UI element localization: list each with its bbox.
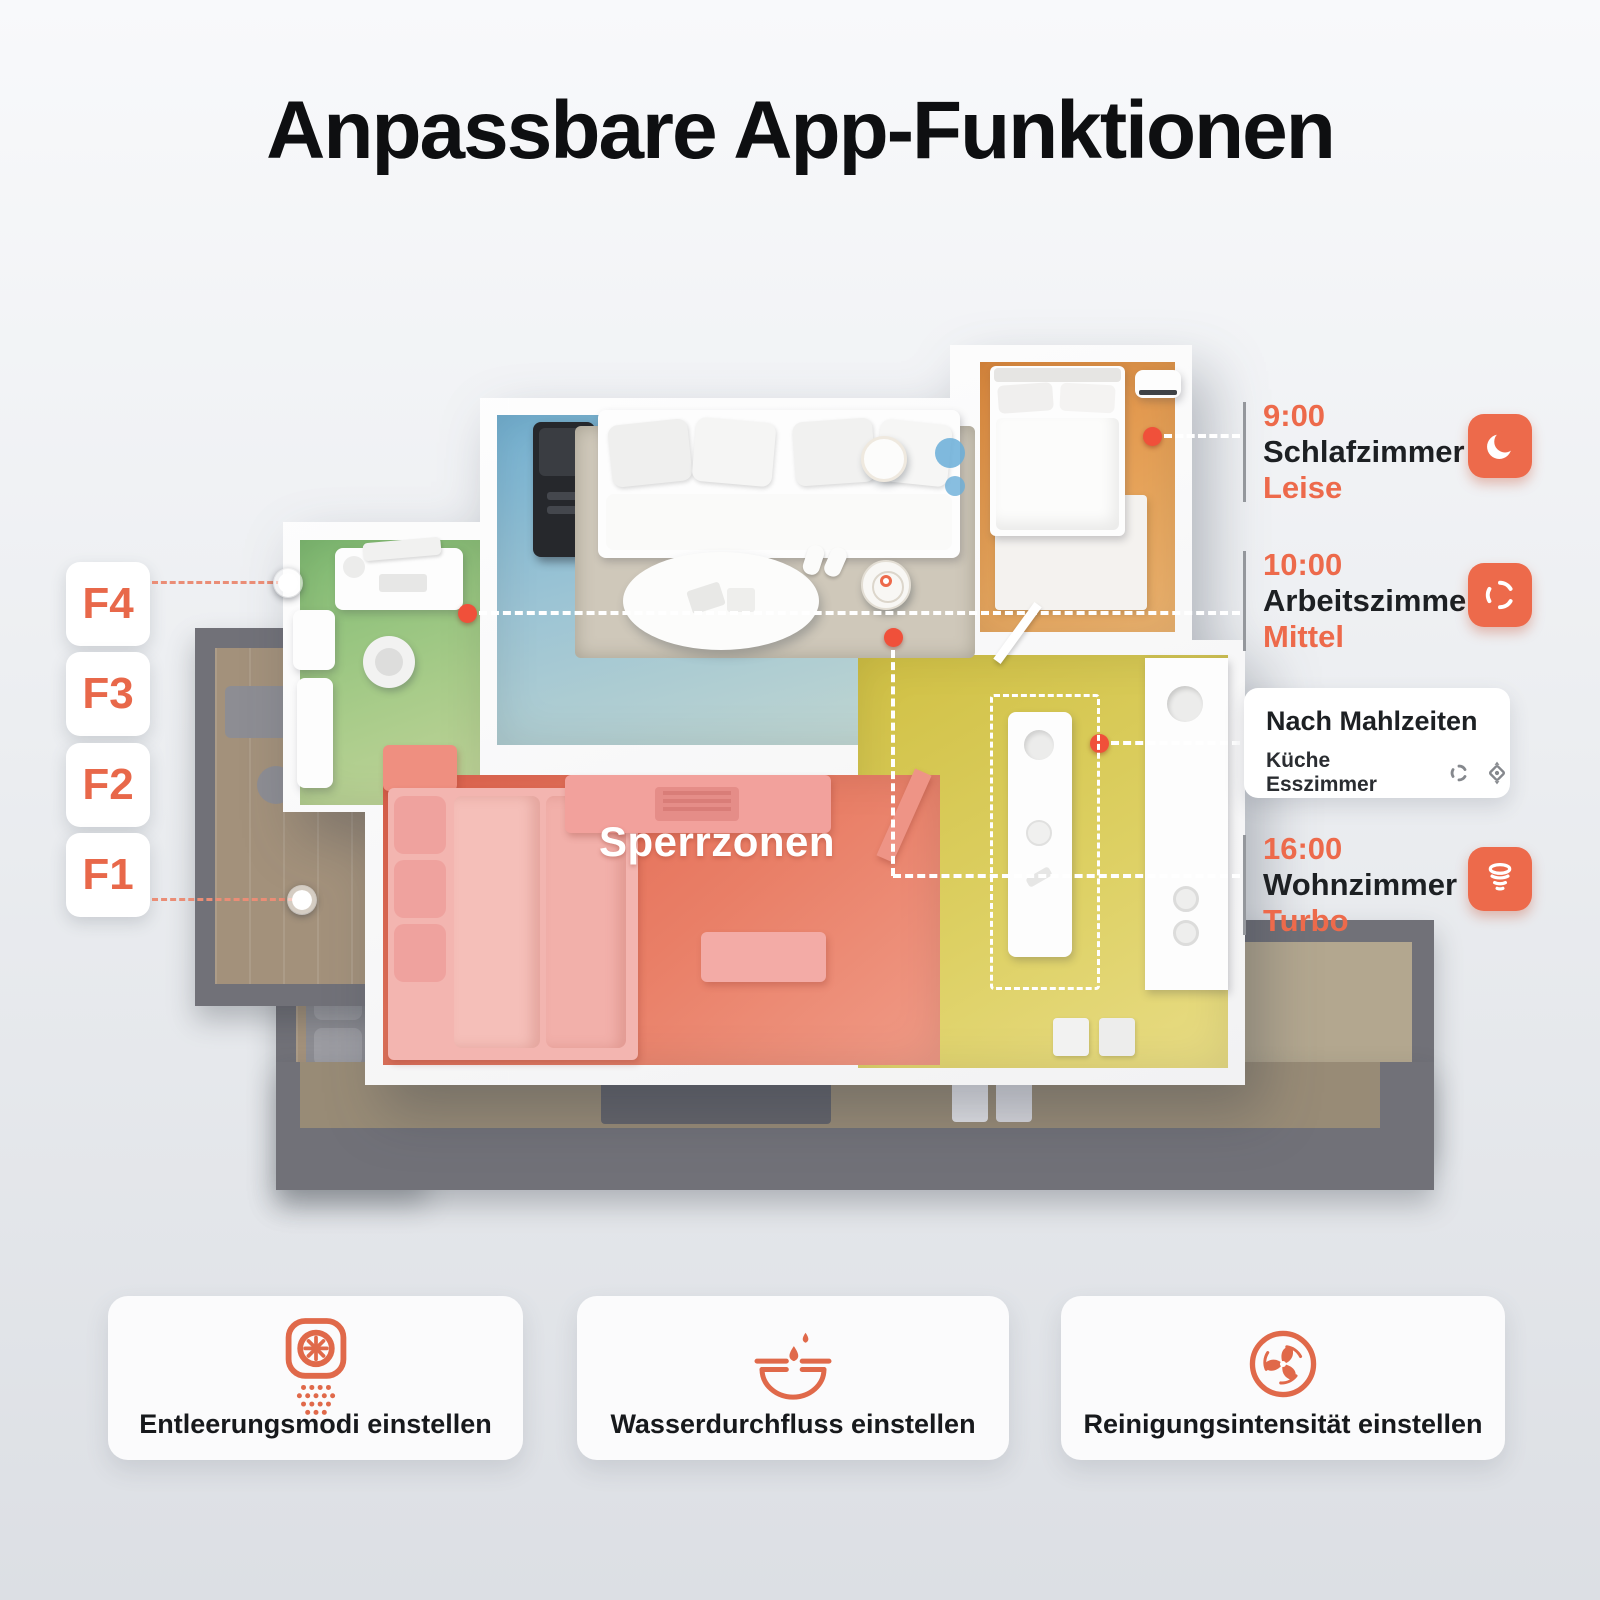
floor-chip-label: F2 bbox=[82, 760, 133, 810]
schedule-time: 16:00 bbox=[1263, 831, 1457, 867]
office-cabinet bbox=[293, 610, 335, 670]
connector-f4 bbox=[152, 581, 282, 584]
feature-card-empty-modes[interactable]: Entleerungsmodi einstellen bbox=[108, 1296, 523, 1460]
map-point-office bbox=[458, 604, 477, 623]
floor-chip-f3[interactable]: F3 bbox=[66, 652, 150, 736]
schedule-mode: Mittel bbox=[1263, 619, 1478, 655]
office-sideboard bbox=[297, 678, 333, 788]
callout-bar bbox=[1243, 402, 1246, 502]
floor-chip-f2[interactable]: F2 bbox=[66, 743, 150, 827]
feature-card-cleaning-intensity[interactable]: Reinigungsintensität einstellen bbox=[1061, 1296, 1505, 1460]
schedule-callout-bedroom[interactable]: 9:00 Schlafzimmer Leise bbox=[1243, 398, 1543, 510]
feature-card-label: Reinigungsintensität einstellen bbox=[1083, 1409, 1482, 1440]
robot-vacuum bbox=[861, 560, 911, 610]
page-title: Anpassbare App-Funktionen bbox=[0, 84, 1600, 178]
kitchen-island-zone bbox=[990, 694, 1100, 990]
fan-swirl-icon bbox=[1446, 760, 1472, 786]
map-point-bedroom bbox=[1143, 427, 1162, 446]
fan-swirl-icon[interactable] bbox=[1468, 563, 1532, 627]
map-point-f4 bbox=[273, 568, 303, 598]
cleaning-intensity-icon bbox=[1241, 1322, 1325, 1411]
office-chair bbox=[363, 636, 415, 688]
zone-edge-vertical bbox=[891, 650, 895, 876]
turbo-spiral-icon[interactable] bbox=[1468, 847, 1532, 911]
connector-office bbox=[479, 611, 1240, 615]
nightstand bbox=[1135, 370, 1181, 398]
moon-icon[interactable] bbox=[1468, 414, 1532, 478]
meal-schedule-card[interactable]: Nach Mahlzeiten Küche Esszimmer bbox=[1244, 688, 1510, 798]
mop-flow-icon bbox=[1484, 760, 1510, 786]
kitchen-door-mats bbox=[1053, 1018, 1143, 1058]
no-go-zone-label: Sperrzonen bbox=[599, 818, 835, 866]
auto-empty-icon bbox=[268, 1316, 364, 1429]
map-point-f1 bbox=[287, 885, 317, 915]
coffee-table bbox=[623, 552, 819, 650]
connector-f1 bbox=[152, 898, 294, 901]
floorplan: Sperrzonen bbox=[283, 330, 1245, 1085]
slippers bbox=[805, 545, 849, 579]
schedule-room: Schlafzimmer bbox=[1263, 434, 1465, 470]
floor-chip-label: F3 bbox=[82, 669, 133, 719]
schedule-room: Arbeitszimmer bbox=[1263, 583, 1478, 619]
connector-bedroom bbox=[1164, 434, 1240, 438]
schedule-mode: Turbo bbox=[1263, 903, 1457, 939]
wall-lamp-icon bbox=[935, 438, 965, 468]
water-flow-icon bbox=[747, 1326, 839, 1413]
schedule-callout-office[interactable]: 10:00 Arbeitszimmer Mittel bbox=[1243, 547, 1543, 659]
meal-card-rooms: Küche Esszimmer bbox=[1266, 749, 1434, 797]
nogo-sofa bbox=[383, 745, 457, 791]
map-point-living bbox=[884, 628, 903, 647]
callout-bar bbox=[1243, 835, 1246, 935]
schedule-time: 10:00 bbox=[1263, 547, 1478, 583]
wall-lamp-icon bbox=[945, 476, 965, 496]
schedule-callout-living[interactable]: 16:00 Wohnzimmer Turbo bbox=[1243, 831, 1543, 943]
connector-kitchen bbox=[1111, 741, 1240, 745]
floor-chip-label: F1 bbox=[82, 850, 133, 900]
meal-card-title: Nach Mahlzeiten bbox=[1266, 706, 1510, 737]
floor-chip-label: F4 bbox=[82, 579, 133, 629]
office-desk bbox=[335, 548, 463, 610]
floor-chip-f1[interactable]: F1 bbox=[66, 833, 150, 917]
side-table bbox=[861, 436, 907, 482]
floor-chip-f4[interactable]: F4 bbox=[66, 562, 150, 646]
callout-bar bbox=[1243, 551, 1246, 651]
bedroom-bed bbox=[990, 366, 1125, 536]
schedule-time: 9:00 bbox=[1263, 398, 1465, 434]
page: { "title": "Anpassbare App-Funktionen", … bbox=[0, 0, 1600, 1600]
schedule-room: Wohnzimmer bbox=[1263, 867, 1457, 903]
feature-card-water-flow[interactable]: Wasserdurchfluss einstellen bbox=[577, 1296, 1009, 1460]
nogo-bench bbox=[701, 932, 826, 982]
floorplan-walls: Sperrzonen bbox=[283, 330, 1245, 1085]
feature-card-label: Wasserdurchfluss einstellen bbox=[610, 1409, 975, 1440]
sofa bbox=[598, 410, 960, 558]
schedule-mode: Leise bbox=[1263, 470, 1465, 506]
kitchen-counter bbox=[1145, 658, 1228, 990]
